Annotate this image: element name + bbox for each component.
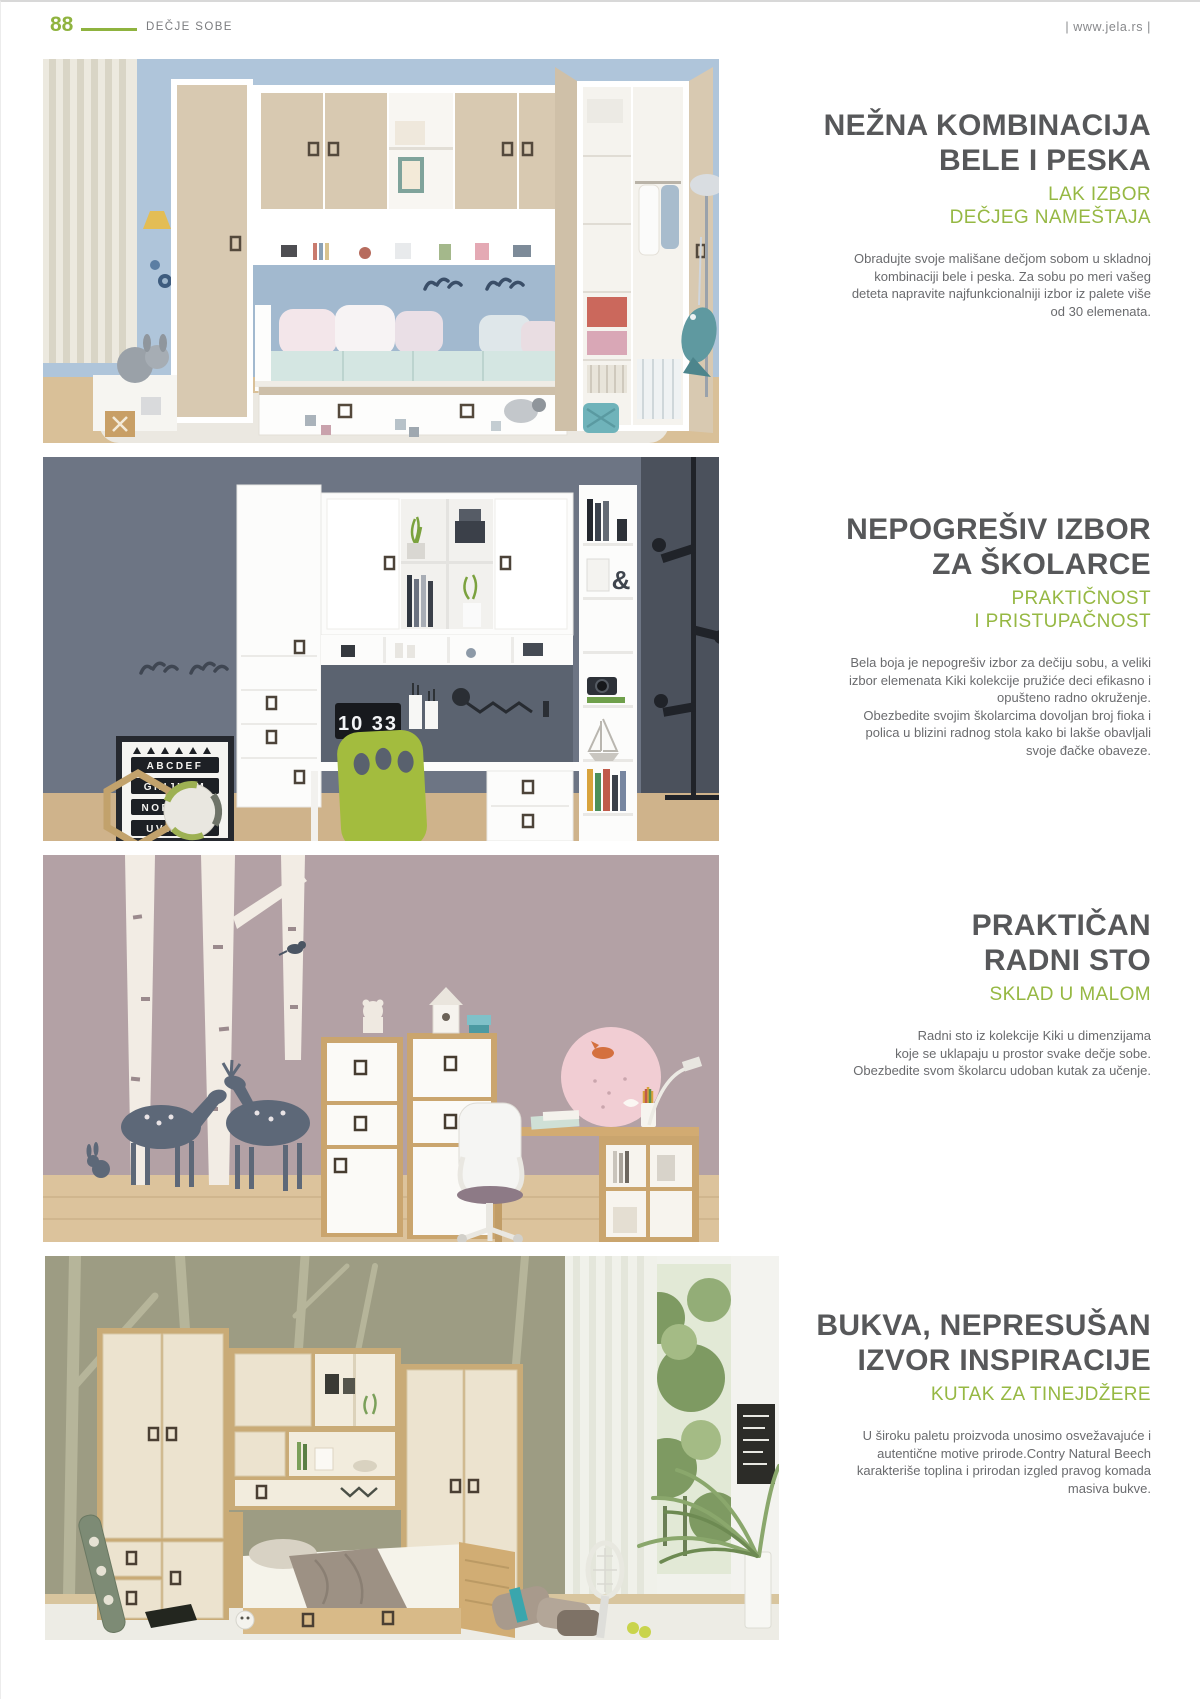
desk-drawers: [487, 771, 573, 841]
ampersand-decor: &: [612, 565, 631, 595]
wardrobe-left: [171, 79, 253, 423]
display-shelf: [253, 237, 571, 265]
section-radni-sto-text: PRAKTIČAN RADNI STO SKLAD U MALOM Radni …: [741, 908, 1151, 1080]
wardrobe-left: [97, 1328, 229, 1620]
window-blinds: [43, 59, 137, 363]
section-title: PRAKTIČAN RADNI STO: [741, 908, 1151, 978]
wardrobe-right-open: [555, 67, 713, 433]
bed: [255, 305, 571, 391]
photo-1-illustration: [43, 59, 719, 443]
title-line-1: BUKVA, NEPRESUŠAN: [741, 1308, 1151, 1343]
section-subtitle: LAK IZBOR DEČJEG NAMEŠTAJA: [741, 183, 1151, 229]
subtitle-line-1: PRAKTIČNOST: [741, 587, 1151, 610]
dark-wall-panel: [641, 457, 719, 795]
subtitle-line-1: SKLAD U MALOM: [741, 983, 1151, 1006]
photo-2-illustration: 10 33: [43, 457, 719, 841]
subtitle-line-1: KUTAK ZA TINEJDŽERE: [741, 1383, 1151, 1406]
section-body: Obradujte svoje mališane dečjom sobom u …: [741, 250, 1151, 320]
section-bukva-text: BUKVA, NEPRESUŠAN IZVOR INSPIRACIJE KUTA…: [741, 1308, 1151, 1497]
section-body: Bela boja je nepogrešiv izbor za dečiju …: [741, 654, 1151, 759]
title-line-2: IZVOR INSPIRACIJE: [741, 1343, 1151, 1378]
photo-3-illustration: [43, 855, 719, 1242]
page-number: 88: [50, 13, 73, 37]
overhead-cabinets: [321, 493, 573, 635]
toy-robot: [236, 1611, 254, 1629]
section-title: NEŽNA KOMBINACIJA BELE I PESKA: [741, 108, 1151, 178]
title-line-2: ZA ŠKOLARCE: [741, 547, 1151, 582]
section-title: BUKVA, NEPRESUŠAN IZVOR INSPIRACIJE: [741, 1308, 1151, 1378]
sheer-curtain: [565, 1256, 657, 1640]
title-line-2: BELE I PESKA: [741, 143, 1151, 178]
photo-kids-room-white-sand: [43, 59, 719, 443]
section-subtitle: SKLAD U MALOM: [741, 983, 1151, 1006]
bookshelf-column: &: [579, 485, 637, 841]
section-subtitle: KUTAK ZA TINEJDŽERE: [741, 1383, 1151, 1406]
header-website: | www.jela.rs |: [1065, 20, 1151, 34]
poster-row-1: ABCDEF: [147, 761, 204, 772]
photo-study-room-gray: 10 33: [43, 457, 719, 841]
title-line-1: NEŽNA KOMBINACIJA: [741, 108, 1151, 143]
photo-desk-mauve-room: [43, 855, 719, 1242]
storage-cabinet-1: [321, 1037, 403, 1237]
tall-cabinet: [237, 485, 321, 807]
section-body: Radni sto iz kolekcije Kiki u dimenzijam…: [741, 1027, 1151, 1080]
section-white-sand-text: NEŽNA KOMBINACIJA BELE I PESKA LAK IZBOR…: [741, 108, 1151, 320]
subtitle-line-1: LAK IZBOR: [741, 183, 1151, 206]
desk-chair-green: [336, 729, 428, 841]
section-subtitle: PRAKTIČNOST I PRISTUPAČNOST: [741, 587, 1151, 633]
teal-basket: [583, 403, 619, 433]
header-accent-line: [81, 28, 137, 31]
desk-leg: [311, 771, 318, 841]
title-line-1: NEPOGREŠIV IZBOR: [741, 512, 1151, 547]
overhead-cabinets: [253, 85, 571, 237]
section-body: U široku paletu proizvoda unosimo osveža…: [741, 1427, 1151, 1497]
subtitle-line-2: I PRISTUPAČNOST: [741, 610, 1151, 633]
header-category-label: DEČJE SOBE: [146, 21, 233, 33]
catalog-page: 88 DEČJE SOBE | www.jela.rs |: [0, 0, 1200, 1699]
overhead-shelf-unit: [229, 1348, 401, 1510]
photo-beech-teen-room: [45, 1256, 779, 1640]
subtitle-line-2: DEČJEG NAMEŠTAJA: [741, 206, 1151, 229]
photo-4-illustration: [45, 1256, 779, 1640]
title-line-1: PRAKTIČAN: [741, 908, 1151, 943]
section-skolarci-text: NEPOGREŠIV IZBOR ZA ŠKOLARCE PRAKTIČNOST…: [741, 512, 1151, 759]
title-line-2: RADNI STO: [741, 943, 1151, 978]
section-title: NEPOGREŠIV IZBOR ZA ŠKOLARCE: [741, 512, 1151, 582]
volleyball: [164, 784, 219, 838]
cubby-shelf-row: [321, 635, 573, 665]
